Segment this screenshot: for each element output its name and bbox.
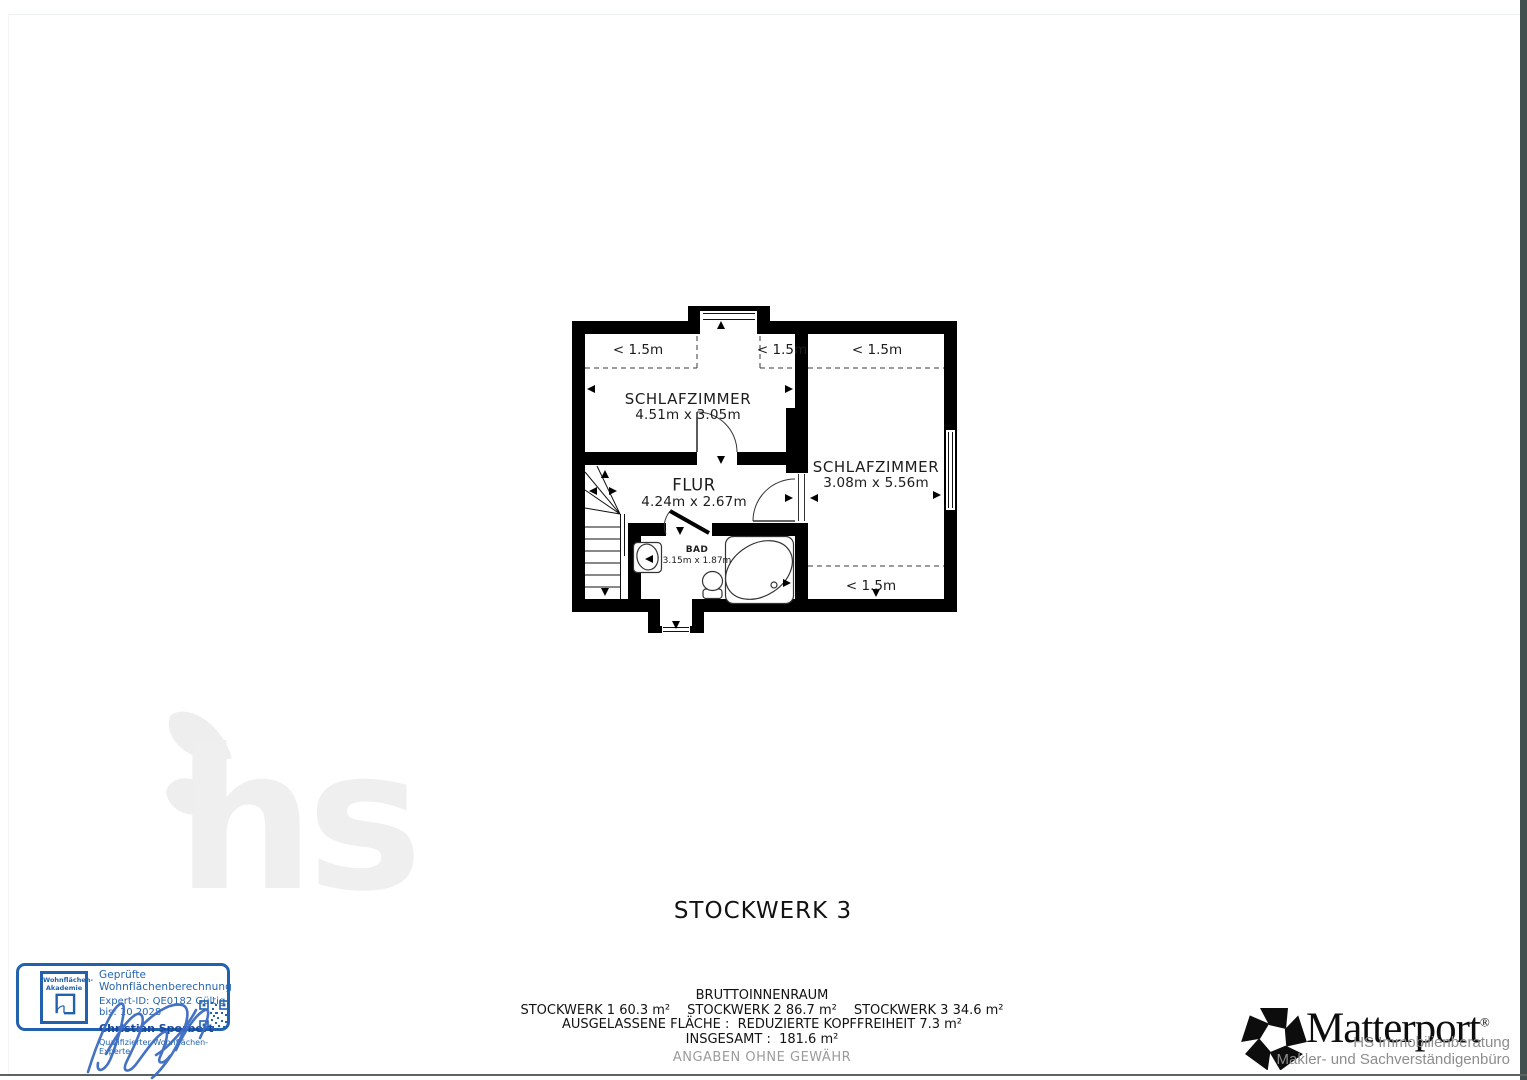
headroom-label: < 1.5m: [846, 578, 896, 594]
staircase: [585, 466, 625, 599]
badge-line-2: Akademie: [43, 985, 85, 993]
headroom-label: < 1.5m: [613, 342, 663, 358]
summary-disclaimer: ANGABEN OHNE GEWÄHR: [520, 1051, 1003, 1066]
bathtub: [715, 529, 804, 612]
summary-total-area: INSGESAMT : 181.6 m²: [520, 1033, 1003, 1048]
signature: [72, 992, 222, 1080]
registered-mark: ®: [1480, 1015, 1490, 1030]
page-frame-right: [1520, 0, 1527, 1080]
floor-title: STOCKWERK 3: [674, 898, 852, 924]
stamp-title: Geprüfte Wohnflächenberechnung: [99, 969, 232, 993]
headroom-label: < 1.5m: [757, 342, 807, 358]
room-dims-schlafzimmer-1: 4.51m x 3.05m: [635, 407, 741, 423]
summary-floor-2: STOCKWERK 2 86.7 m²: [687, 1004, 837, 1019]
room-label-schlafzimmer-1: SCHLAFZIMMER: [625, 390, 752, 408]
room-dims-bad: 3.15m x 1.87m: [663, 556, 732, 566]
summary-floor-1: STOCKWERK 1 60.3 m²: [520, 1004, 670, 1019]
page-frame-top: [8, 14, 1520, 15]
summary-excluded-area: AUSGELASSENE FLÄCHE : REDUZIERTE KOPFFRE…: [520, 1018, 1003, 1033]
bathroom-fixtures: [634, 529, 804, 612]
area-summary: BRUTTOINNENRAUM STOCKWERK 1 60.3 m² STOC…: [520, 989, 1003, 1066]
room-label-bad: BAD: [686, 545, 709, 555]
room-dims-flur: 4.24m x 2.67m: [641, 494, 747, 510]
company-line-2: Makler- und Sachverständigenbüro: [1277, 1051, 1510, 1068]
room-dims-schlafzimmer-2: 3.08m x 5.56m: [823, 475, 929, 491]
summary-heading: BRUTTOINNENRAUM: [520, 989, 1003, 1004]
headroom-label: < 1.5m: [852, 342, 902, 358]
company-line-1: HS Immobilienberatung: [1277, 1034, 1510, 1051]
sink: [634, 542, 662, 572]
room-label-schlafzimmer-2: SCHLAFZIMMER: [813, 458, 940, 476]
toilet: [703, 572, 723, 599]
room-label-flur: FLUR: [672, 476, 715, 495]
page-frame-left: [8, 14, 9, 1074]
watermark-letters: hs: [176, 707, 415, 911]
page-frame-bottom-rule: [0, 1074, 1527, 1076]
company-name-block: HS Immobilienberatung Makler- und Sachve…: [1277, 1034, 1510, 1068]
hs-watermark-logo: hs: [162, 696, 442, 911]
floorplan-page: hs: [0, 0, 1527, 1080]
door-symbols: [664, 412, 804, 534]
summary-floor-areas: STOCKWERK 1 60.3 m² STOCKWERK 2 86.7 m² …: [520, 1004, 1003, 1019]
summary-floor-3: STOCKWERK 3 34.6 m²: [854, 1004, 1004, 1019]
